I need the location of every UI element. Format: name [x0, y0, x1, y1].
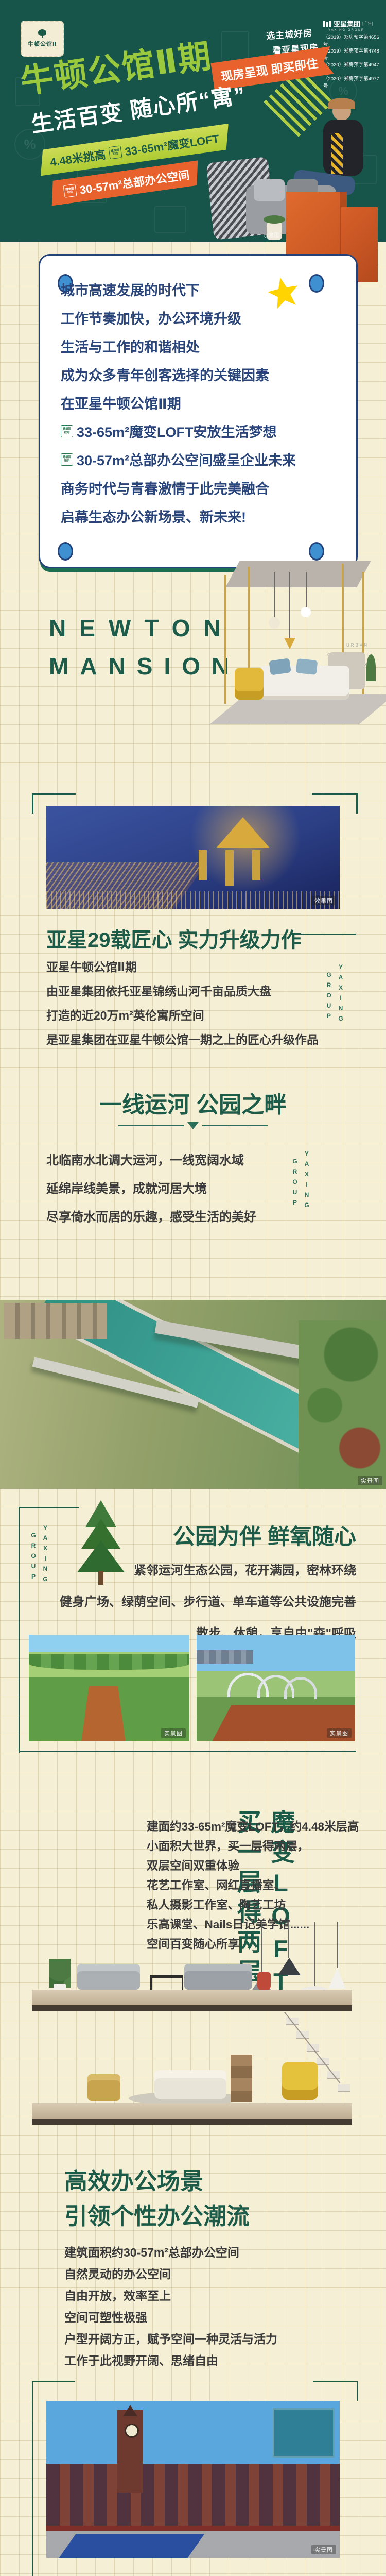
park-arch-photo: 实景图: [197, 1635, 355, 1741]
intro-line-6: 33-65m²魔变LOFT安放生活梦想: [77, 421, 277, 441]
ribbon-loft-right: 33-65m²魔变LOFT: [124, 130, 220, 159]
slogan-line1: 选主城好房: [266, 25, 323, 42]
office-section: 高效办公场景 引领个性办公潮流 建筑面积约30-57m²总部办公空间 自然灵动的…: [0, 2146, 386, 2380]
craft-line-3: 打造的近20万m²英伦寓所空间: [46, 1006, 204, 1023]
office-line-1: 建筑面积约30-57m²总部办公空间: [64, 2243, 239, 2260]
mall-section: 实景图 潮玩街MALL 新潮生活 楼下就是郑州首个约4.5万方"漫生活"主题街区…: [0, 2380, 386, 2576]
lamp-cord: [306, 572, 307, 608]
vertical-brand-group: GROUP: [325, 971, 332, 1025]
lamp-cord: [337, 1922, 338, 1968]
office-line-5: 户型开阔方正，赋予空间一种灵活与活力: [64, 2329, 277, 2347]
intro-line-2: 工作节奏加快，办公环境升级: [61, 308, 241, 328]
newton-section: NEWTON MANSION URBAN COMMERCIAL COMPLEX: [0, 592, 386, 793]
park-line-2: 健身广场、绿荫空间、步行道、单车道等公共设施完善: [31, 1591, 356, 1609]
pendant-lamp-icon: [328, 1968, 346, 1989]
area-badge-icon: 建筑面积约: [61, 453, 73, 466]
loft-section: 魔变LOFT 买一层得两层 建面约33-65m²魔变LOFT，约4.48米层高 …: [0, 1803, 386, 2146]
brand-en: YAXING GROUP: [328, 29, 382, 32]
gold-post: [224, 575, 226, 704]
clock-face: [125, 2424, 139, 2438]
blue-carpet: [58, 2534, 204, 2558]
park-section: YAXING GROUP 公园为伴 鲜氧随心 紧邻运河生态公园，花开满园，密林环…: [0, 1489, 386, 1803]
vertical-brand: YAXING GROUP: [325, 963, 344, 1025]
photo-label: 实景图: [358, 1476, 382, 1485]
lamp-cord: [289, 572, 290, 639]
yellow-armchair: [282, 2062, 318, 2100]
mall-street-photo: 实景图: [46, 2401, 340, 2558]
canal-headline: 一线运河 公园之畔: [0, 1086, 386, 1119]
city-skyline: [197, 1650, 253, 1664]
model-hair: [328, 98, 355, 109]
upper-platform: [32, 1990, 352, 2011]
canopy-top: [225, 561, 371, 587]
loft-line-5: 私人摄影工作室、陶艺工坊: [147, 1896, 286, 1912]
office-headline-1: 高效办公场景: [64, 2162, 203, 2196]
area-badge-icon: 建筑面积约: [108, 145, 122, 159]
canal-section: 一线运河 公园之畔 北临南水北调大运河，一线宽阔水域 延绵岸线美景，成就河居大境…: [0, 1082, 386, 1300]
intro-line-8: 商务时代与青春激情于此完美融合: [61, 478, 269, 498]
loft-line-1: 建面约33-65m²魔变LOFT，约4.48米层高: [147, 1818, 359, 1834]
ribbon-loft-left: 4.48米挑高: [49, 146, 107, 170]
gold-pillar-icon: [252, 850, 260, 880]
craft-headline: 亚星29载匠心 实力升级力作: [46, 923, 302, 953]
plant-leaves: [264, 215, 285, 224]
park-headline: 公园为伴 鲜氧随心: [134, 1519, 356, 1551]
vertical-brand-group: GROUP: [291, 1158, 299, 1212]
intro-line-4: 成为众多青年创客选择的关键因素: [61, 364, 269, 384]
photo-label: 实景图: [311, 2545, 336, 2554]
license-4: （2020）郑房预字第4977号: [323, 76, 382, 90]
yaxing-logo-icon: [323, 21, 331, 27]
gold-pillar-icon: [199, 850, 207, 880]
blue-pillow: [269, 658, 291, 675]
awning-strip: [46, 2526, 340, 2531]
lamp-cord: [261, 1922, 262, 1976]
shelf: [231, 2055, 252, 2102]
sofa-pillow: [254, 179, 285, 201]
craft-line-4: 是亚星集团在亚星牛顿公馆一期之上的匠心升级作品: [46, 1030, 319, 1047]
headline-rule: [292, 934, 356, 935]
loft-illustration: [0, 1922, 386, 2146]
blue-pillow: [296, 658, 318, 675]
lower-platform: [32, 2103, 352, 2125]
area-badge-icon: 建筑面积约: [61, 425, 73, 437]
corner-bracket-right: [313, 2381, 358, 2401]
logo-text: 牛顿公馆Ⅱ: [28, 40, 57, 48]
intro-line-7-row: 建筑面积约 30-57m²总部办公空间盛呈企业未来: [61, 449, 296, 469]
dot-decor: [58, 542, 73, 561]
header-section: % % % 牛顿公馆Ⅱ 选主城好房 看亚星现房 亚星集团: [0, 0, 386, 242]
lamp-cone: [284, 638, 295, 649]
lamp-cord: [314, 1922, 315, 1986]
craft-section: 效果图 亚星29载匠心 实力升级力作 亚星牛顿公馆Ⅱ期 由亚星集团依托亚星锦绣山…: [0, 793, 386, 1082]
loft-line-3: 双层空间双重体验: [147, 1857, 239, 1873]
vertical-brand-yaxing: YAXING: [337, 963, 344, 1025]
lamp-cord: [274, 572, 275, 618]
office-line-4: 空间可塑性极强: [64, 2308, 147, 2325]
loft-line-4: 花艺工作室、网红直播室、: [147, 1876, 286, 1893]
craft-line-1: 亚星牛顿公馆Ⅱ期: [46, 957, 137, 975]
gray-sofa: [77, 1964, 140, 1990]
park-line-1: 紧邻运河生态公园，花开满园，密林环绕: [31, 1560, 356, 1578]
red-stool: [257, 1972, 271, 1991]
tree-icon: [38, 29, 46, 36]
tree-line: [29, 1654, 189, 1670]
header-photo-note: 示意图: [264, 231, 279, 239]
office-line-3: 自由开放，效率至上: [64, 2286, 171, 2303]
office-line-6: 工作于此视野开阔、思绪自由: [64, 2351, 218, 2368]
promo-page: % % % 牛顿公馆Ⅱ 选主城好房 看亚星现房 亚星集团: [0, 0, 386, 2576]
park-path-photo: 实景图: [29, 1635, 189, 1741]
craft-line-2: 由亚星集团依托亚星锦绣山河千亩品质大盘: [46, 981, 271, 999]
canal-line-2: 延绵岸线美景，成就河居大境: [46, 1178, 207, 1196]
stair-step: [338, 2084, 350, 2091]
newton-word-2: MANSION: [49, 652, 240, 680]
area-badge-icon: 建筑面积约: [63, 184, 77, 198]
brand-cn: 亚星集团: [334, 19, 360, 28]
canal-line-3: 尽享倚水而居的乐趣，感受生活的美好: [46, 1207, 256, 1225]
buildings-strip: [4, 1303, 107, 1339]
office-line-2: 自然灵动的办公空间: [64, 2264, 171, 2282]
tree-trunk-icon: [42, 36, 43, 38]
loft-line-2: 小面积大世界，买一层得两层，: [147, 1837, 309, 1854]
newton-word-1: NEWTON: [49, 614, 234, 642]
frame-bottom-line: [19, 1751, 356, 1752]
vertical-brand-yaxing: YAXING: [303, 1150, 310, 1212]
clock-tower: [117, 2410, 143, 2493]
intro-line-3: 生活与工作的和谐相处: [61, 336, 200, 356]
license-2: （2019）郑房预字第4748号: [323, 48, 382, 62]
tower-roof: [123, 2405, 137, 2416]
ad-tag: [广告]: [362, 21, 373, 26]
intro-line-7: 30-57m²总部办公空间盛呈企业未来: [77, 449, 296, 469]
vertical-brand: YAXING GROUP: [291, 1150, 310, 1212]
gold-pillar-icon: [225, 850, 234, 886]
corner-bracket-left: [32, 2381, 75, 2401]
photo-label: 实景图: [327, 1728, 352, 1738]
photo-label: 效果图: [311, 896, 336, 905]
intro-line-5: 在亚星牛顿公馆Ⅱ期: [61, 393, 181, 413]
intro-line-6-row: 建筑面积约 33-65m²魔变LOFT安放生活梦想: [61, 421, 277, 441]
project-logo: 牛顿公馆Ⅱ: [21, 21, 64, 57]
mall-headline: 潮玩街MALL 新潮生活: [46, 2572, 253, 2576]
headline-divider: [118, 1122, 268, 1129]
wood-chair: [87, 2074, 120, 2101]
yellow-armchair: [235, 668, 264, 700]
gold-roof-icon: [216, 817, 270, 848]
city-night-photo: 效果图: [46, 806, 340, 909]
glass-billboard: [273, 2408, 335, 2458]
lamp-cord: [288, 1922, 289, 1958]
carpet: [209, 694, 386, 724]
park-path: [80, 1686, 128, 1741]
shop-pattern-icon: [154, 206, 186, 233]
dot-decor: [309, 274, 324, 293]
frame-left-line: [32, 2381, 33, 2576]
photo-label: 实景图: [161, 1728, 186, 1738]
canal-aerial-photo: 实景图: [0, 1300, 386, 1489]
mall-windows: [46, 2464, 340, 2530]
lamp-bulb: [301, 607, 311, 617]
intro-line-1: 城市高速发展的时代下: [61, 279, 200, 299]
park-lines: 紧邻运河生态公园，花开满园，密林环绕 健身广场、绿荫空间、步行道、单车道等公共设…: [31, 1560, 356, 1641]
pendant-lamp-icon: [278, 1958, 301, 1975]
office-headline-2: 引领个性办公潮流: [64, 2197, 250, 2231]
lamp-bulb: [269, 617, 280, 629]
brand-block: 亚星集团 [广告] YAXING GROUP （2019）郑房预字第4656号 …: [323, 19, 382, 90]
city-lights: [46, 891, 340, 909]
intro-line-9: 启幕生态办公新场景、新未来!: [61, 506, 246, 526]
intro-section: 城市高速发展的时代下 工作节奏加快，办公环境升级 生活与工作的和谐相处 成为众多…: [0, 242, 386, 592]
canal-line-1: 北临南水北调大运河，一线宽阔水域: [46, 1150, 244, 1168]
trees-bank: [299, 1320, 386, 1489]
plant: [366, 654, 376, 681]
triangle-icon: [187, 1122, 199, 1129]
bed-illustration: [212, 556, 384, 747]
light-sofa: [154, 2070, 226, 2099]
license-1: （2019）郑房预字第4656号: [323, 34, 382, 48]
gray-sofa: [184, 1964, 252, 1990]
